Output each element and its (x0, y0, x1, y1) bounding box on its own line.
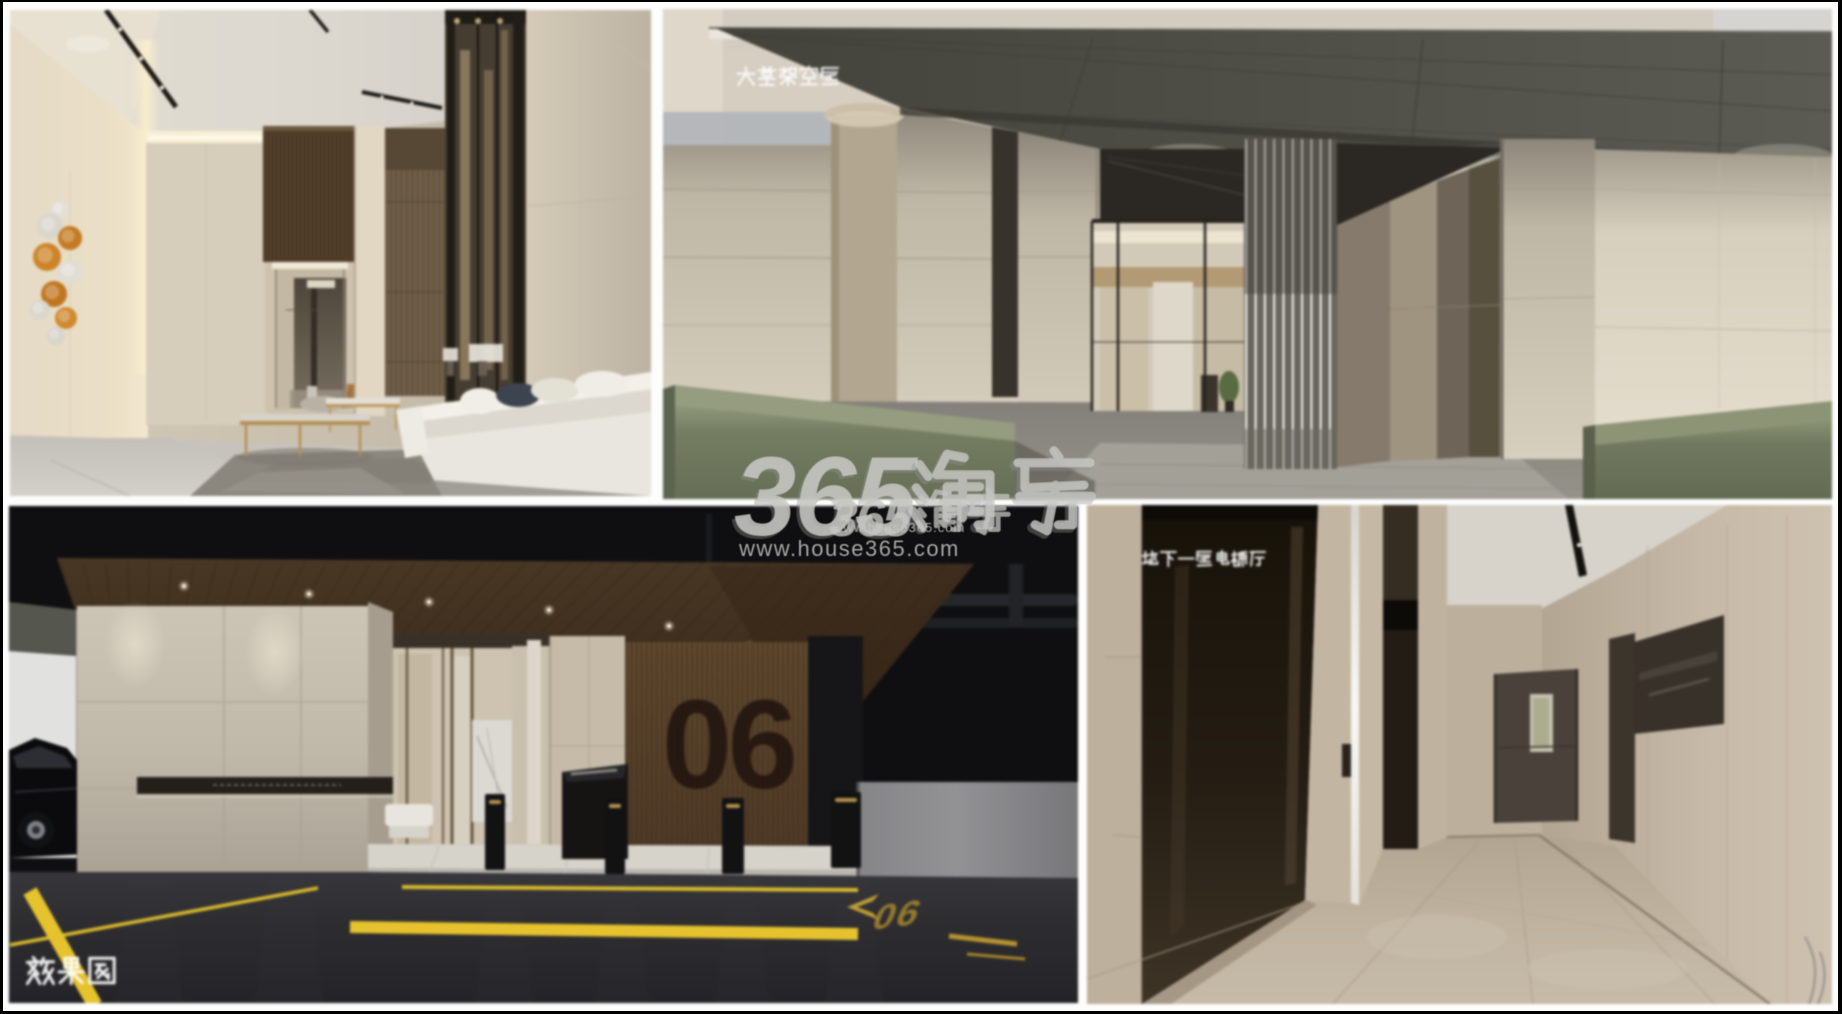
svg-text:www.house365.com: www.house365.com (832, 520, 965, 535)
svg-text:www.house365.com: www.house365.com (738, 536, 960, 561)
